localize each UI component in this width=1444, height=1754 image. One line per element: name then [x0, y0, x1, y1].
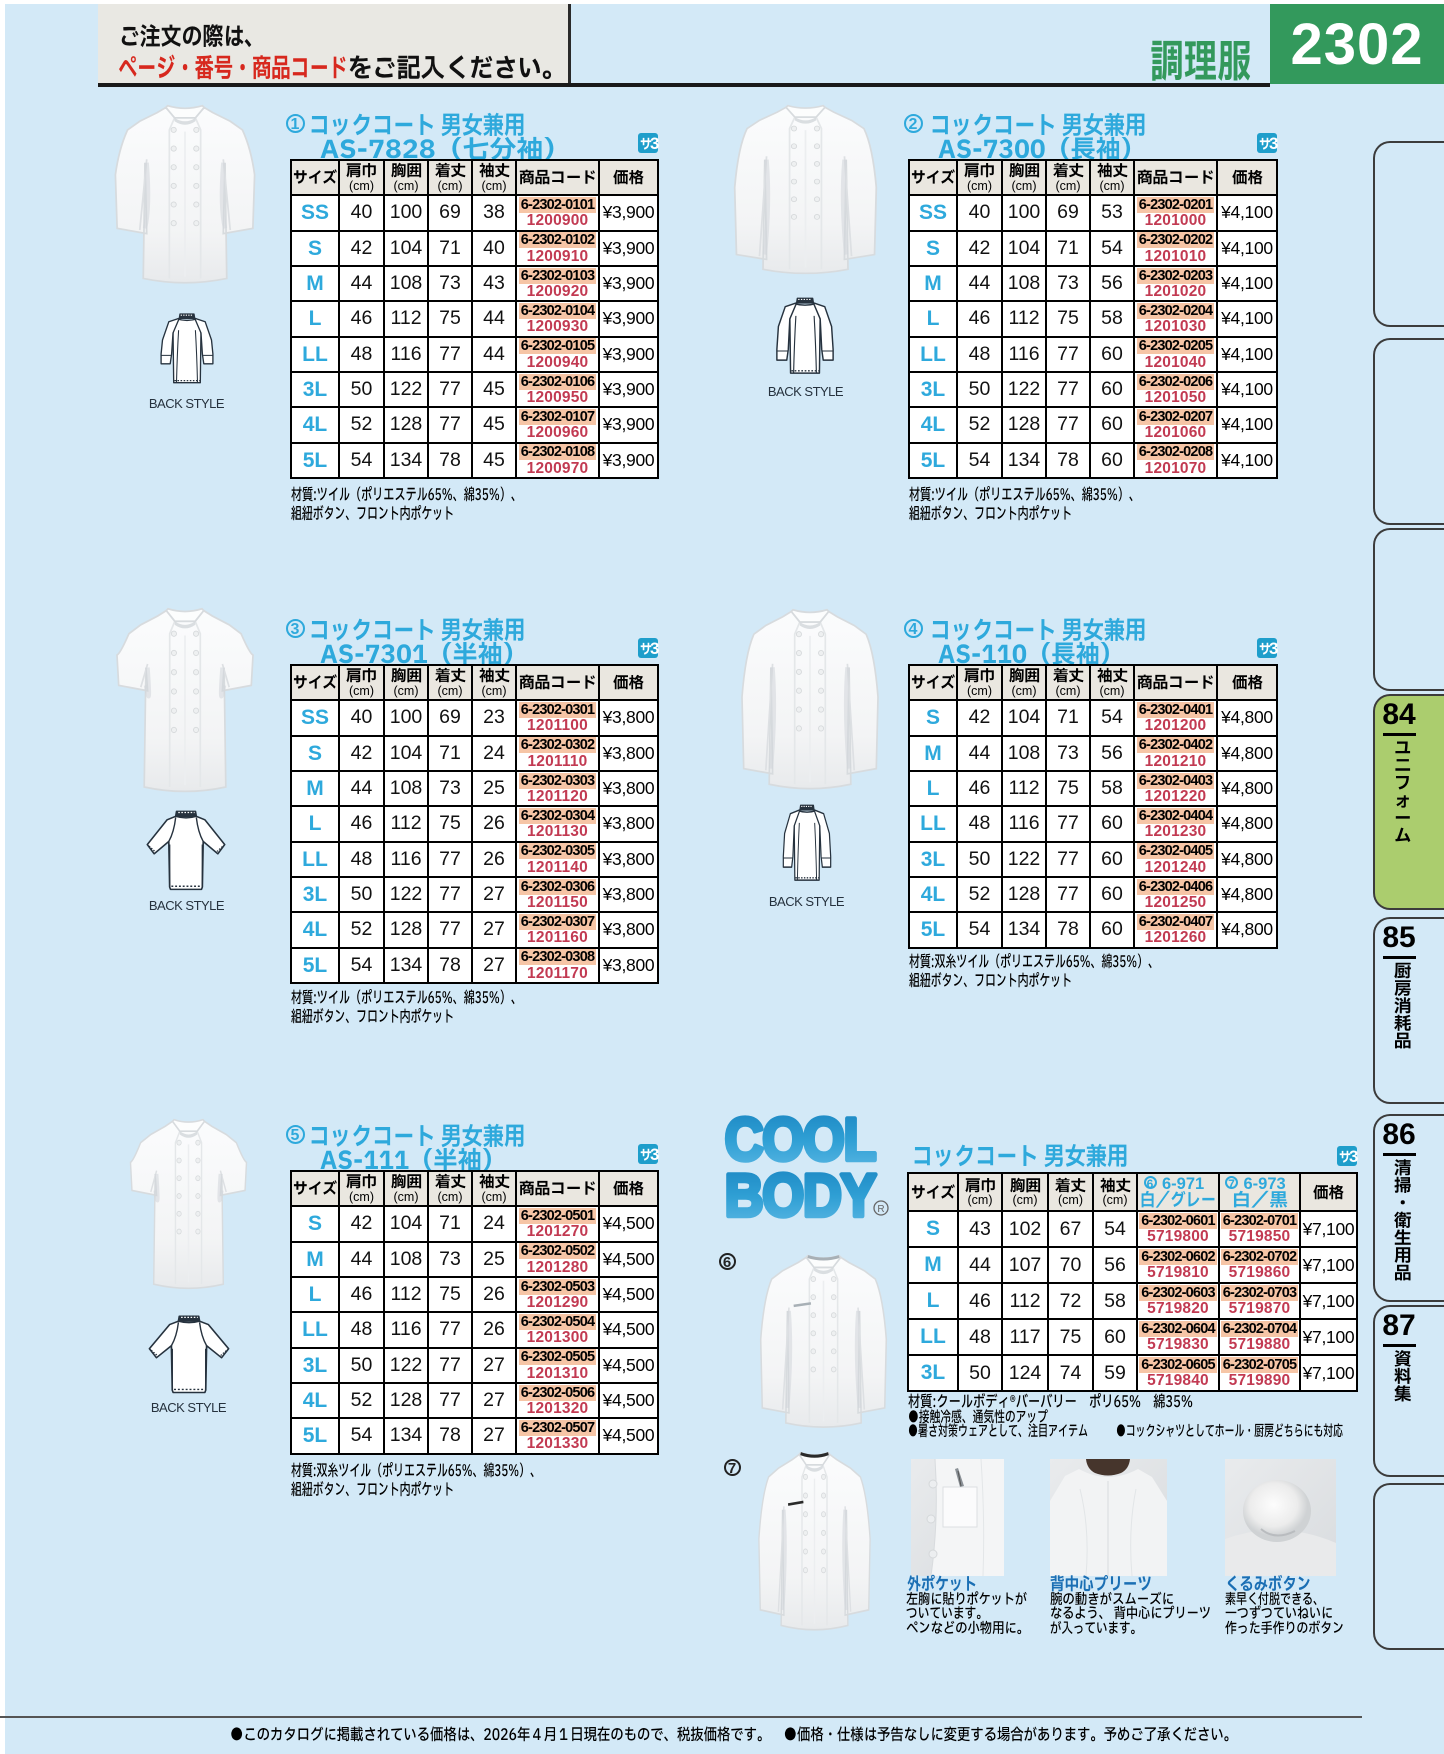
svg-text:BODY: BODY	[725, 1162, 877, 1229]
svg-text:R: R	[877, 1204, 884, 1215]
